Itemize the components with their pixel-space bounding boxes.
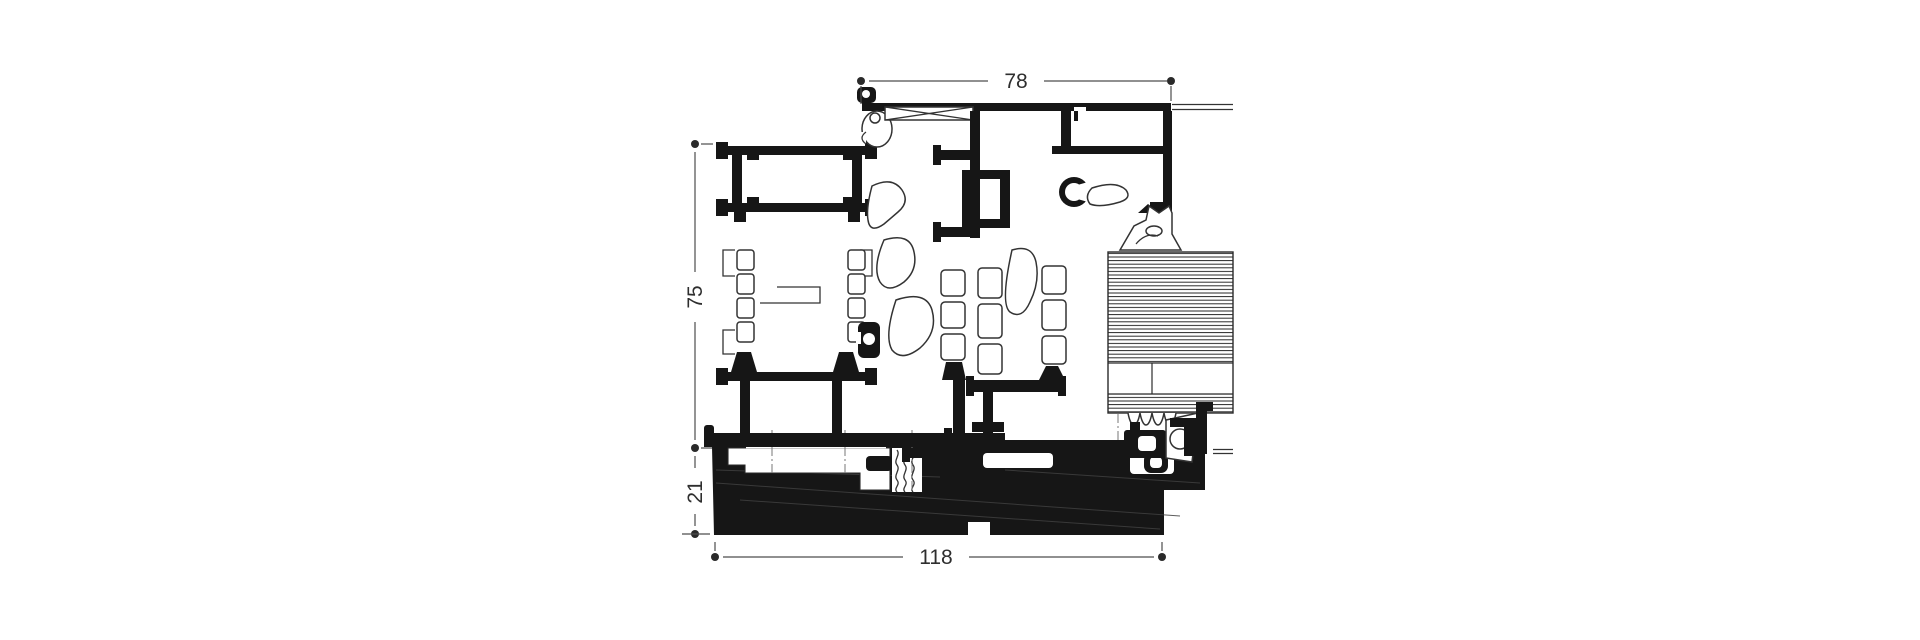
dimension-top: 78: [857, 70, 1175, 104]
dimension-left-lower: 21: [682, 456, 710, 538]
dimension-left-upper: 75: [684, 140, 713, 452]
thermal-break-cells-left: [737, 250, 865, 342]
dimension-label-left-upper: 75: [684, 285, 707, 308]
glazing-panel: [1108, 252, 1233, 425]
frame-profile-right: [1052, 105, 1233, 251]
dimension-bottom: 118: [711, 542, 1166, 569]
sill-drain-slot: [983, 453, 1053, 468]
glazing-tape: [885, 107, 973, 120]
dimension-label-left-lower: 21: [684, 480, 707, 503]
dimension-label-top: 78: [1004, 70, 1027, 93]
dimension-label-bottom: 118: [919, 546, 952, 569]
drawing-canvas: 78 75 21 118: [0, 0, 1920, 640]
technical-drawing: 78 75 21 118: [0, 0, 1920, 640]
thermal-break-cells-center: [941, 266, 1066, 374]
